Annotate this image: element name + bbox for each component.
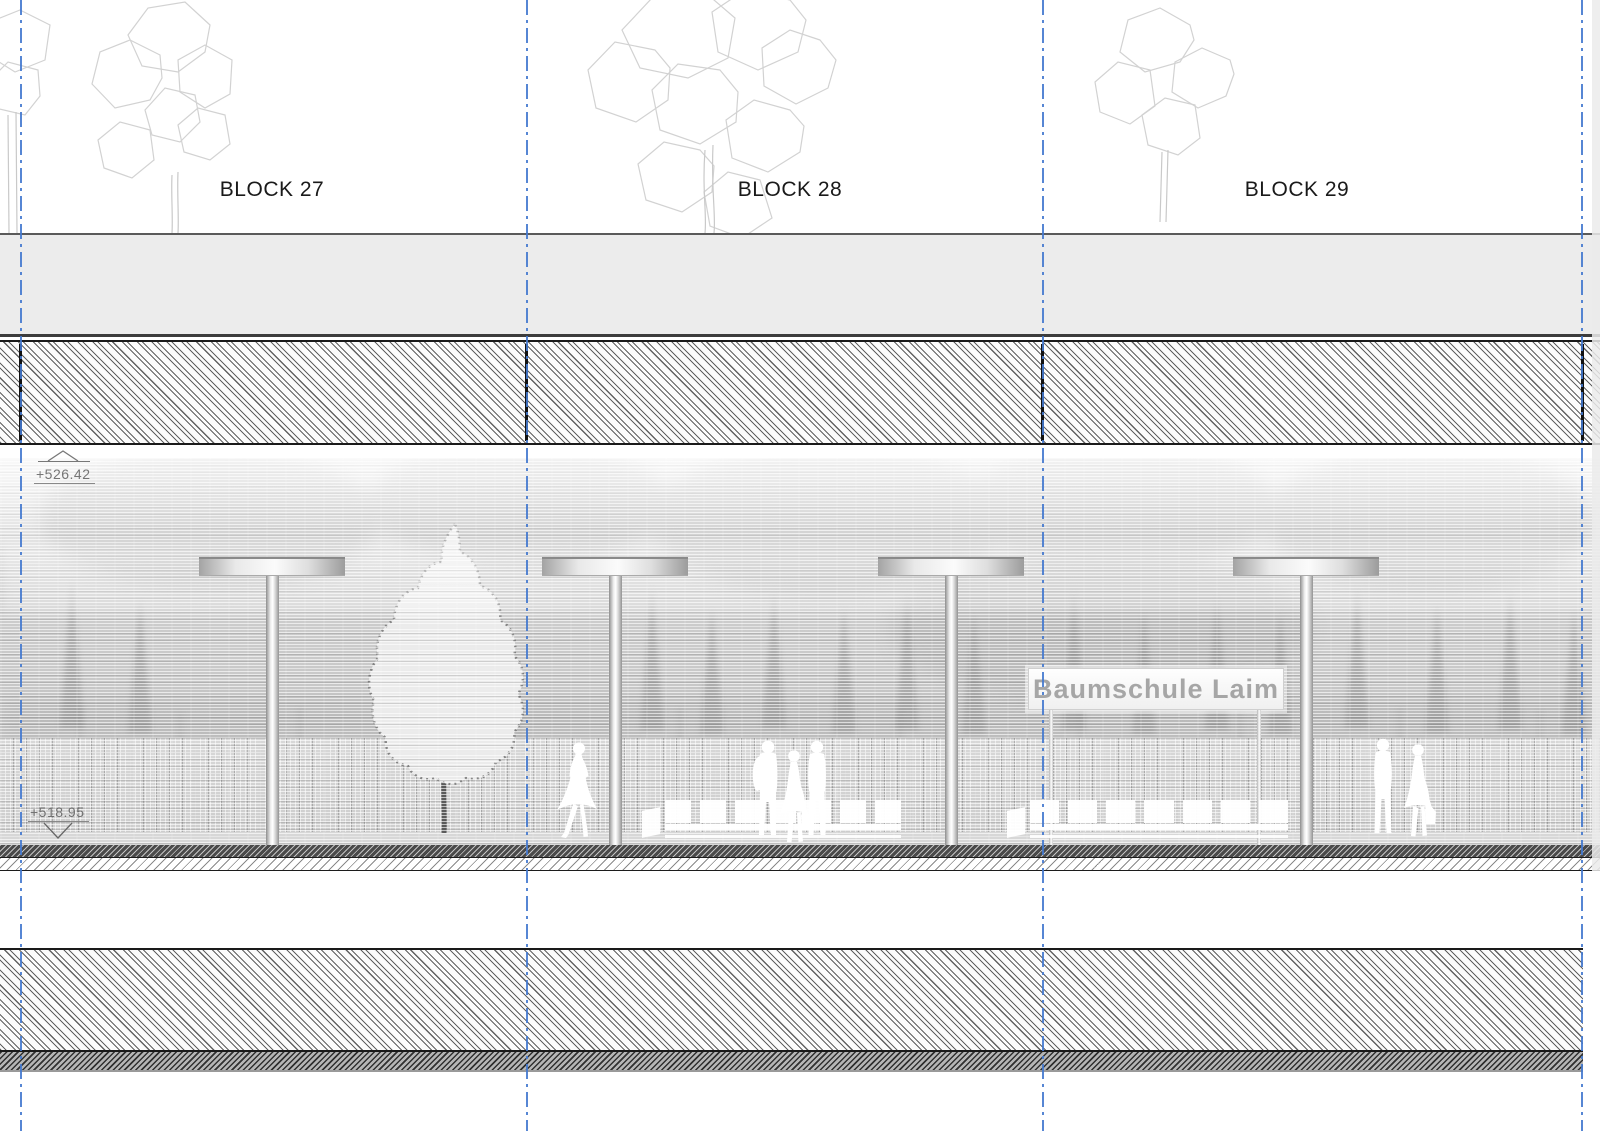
bench-backrest xyxy=(665,800,901,823)
bench-side-panel xyxy=(1007,807,1025,838)
platform-edge-strip xyxy=(0,845,1600,857)
platform-base-hatch xyxy=(0,857,1600,871)
block-label-27: BLOCK 27 xyxy=(152,178,392,202)
bench-seat xyxy=(665,824,901,830)
canopy-light xyxy=(199,557,345,576)
block-divider xyxy=(1581,344,1584,441)
bench-rail xyxy=(1030,835,1288,838)
elevation-marker-upper: +526.42 xyxy=(34,450,95,484)
block-divider xyxy=(1041,344,1044,441)
deck-slab-hatch xyxy=(0,340,1600,445)
bench xyxy=(665,800,901,842)
block-divider xyxy=(19,344,22,441)
bench-side-panel xyxy=(642,807,660,838)
canopy-pole xyxy=(945,576,958,845)
lower-slab-hatch xyxy=(0,948,1583,1052)
elevation-drawing-sheet: BLOCK 27 BLOCK 28 BLOCK 29 xyxy=(0,0,1600,1131)
bench-rail xyxy=(665,835,901,838)
elevation-value: +518.95 xyxy=(28,804,89,822)
canopy-light xyxy=(542,557,688,576)
canopy-pole xyxy=(266,576,279,845)
level-triangle-icon xyxy=(34,450,94,463)
lower-dense-hatch xyxy=(0,1052,1583,1072)
sheet-edge xyxy=(1592,0,1600,871)
elevation-marker-platform: +518.95 xyxy=(28,804,89,844)
canopy-pole xyxy=(1300,576,1313,845)
bench xyxy=(1030,800,1288,842)
block-divider xyxy=(525,344,528,441)
deck-band xyxy=(0,233,1600,337)
bench-backrest xyxy=(1030,800,1288,823)
station-sign: Baumschule Laim xyxy=(1028,668,1284,710)
elevation-value: +526.42 xyxy=(34,466,95,484)
level-triangle-icon xyxy=(28,822,88,841)
station-photo-strip: Baumschule Laim xyxy=(0,458,1600,845)
canopy-pole xyxy=(609,576,622,845)
block-label-28: BLOCK 28 xyxy=(670,178,910,202)
station-sign-label: Baumschule Laim xyxy=(1033,674,1279,705)
bench-seat xyxy=(1030,824,1288,830)
canopy-light xyxy=(1233,557,1379,576)
block-label-29: BLOCK 29 xyxy=(1177,178,1417,202)
canopy-light xyxy=(878,557,1024,576)
top-margin-zone: BLOCK 27 BLOCK 28 BLOCK 29 xyxy=(0,0,1600,233)
